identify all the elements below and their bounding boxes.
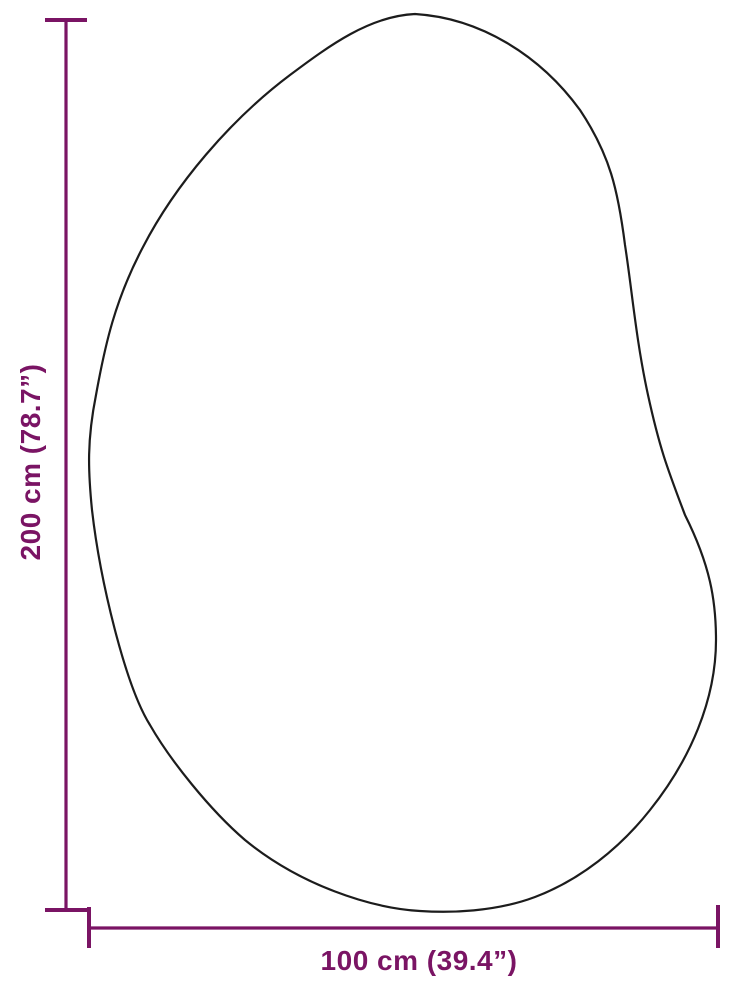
width-dimension-label: 100 cm (39.4”) (321, 945, 518, 977)
dimension-diagram: 200 cm (78.7”) 100 cm (39.4”) (0, 0, 737, 983)
width-dimension-line (89, 905, 718, 948)
height-dimension-label: 200 cm (78.7”) (15, 364, 47, 561)
diagram-canvas (0, 0, 737, 983)
height-dimension-line (45, 19, 88, 911)
rug-outline-shape (89, 14, 716, 912)
